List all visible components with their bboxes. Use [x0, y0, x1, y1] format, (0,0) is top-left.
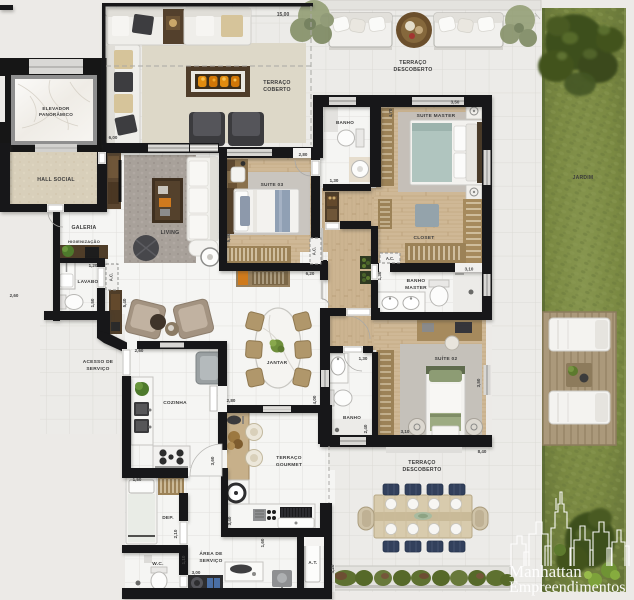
svg-text:SUITE 03: SUITE 03: [261, 182, 284, 188]
svg-text:LIVING: LIVING: [161, 230, 180, 236]
svg-text:BANHO: BANHO: [407, 278, 426, 284]
svg-text:3,50: 3,50: [451, 100, 460, 105]
svg-text:SERVIÇO: SERVIÇO: [199, 558, 222, 564]
svg-text:HIGIENIZAÇÃO: HIGIENIZAÇÃO: [68, 239, 100, 244]
svg-text:DESCOBERTO: DESCOBERTO: [393, 67, 432, 73]
svg-text:ACESSO DE: ACESSO DE: [83, 359, 114, 365]
svg-text:COBERTO: COBERTO: [263, 87, 291, 93]
svg-text:JANTAR: JANTAR: [267, 360, 288, 366]
svg-text:A.T.: A.T.: [308, 560, 317, 565]
svg-text:BANHO: BANHO: [343, 415, 361, 420]
svg-text:LAVABO: LAVABO: [77, 279, 98, 285]
svg-text:A.C.: A.C.: [386, 256, 394, 261]
svg-text:3,60: 3,60: [210, 456, 215, 465]
svg-text:1,60: 1,60: [260, 538, 265, 547]
svg-text:BANHO: BANHO: [336, 120, 354, 125]
svg-text:DESCOBERTO: DESCOBERTO: [402, 467, 441, 473]
svg-text:W.C.: W.C.: [152, 561, 163, 567]
svg-text:Empreendimentos: Empreendimentos: [509, 579, 625, 596]
svg-text:TERRAÇO: TERRAÇO: [263, 80, 290, 86]
svg-text:3,40: 3,40: [227, 516, 232, 525]
svg-text:CLOSET: CLOSET: [414, 235, 435, 241]
svg-text:HALL SOCIAL: HALL SOCIAL: [37, 177, 75, 183]
svg-text:ÁREA DE: ÁREA DE: [199, 550, 223, 557]
svg-text:2,60: 2,60: [135, 348, 144, 353]
svg-text:3,00: 3,00: [192, 570, 201, 575]
svg-text:GALERIA: GALERIA: [71, 225, 96, 231]
svg-text:1,30: 1,30: [330, 178, 339, 183]
svg-text:3,10: 3,10: [465, 267, 474, 272]
svg-text:A.C.: A.C.: [109, 273, 114, 281]
svg-text:SUITE MASTER: SUITE MASTER: [417, 113, 456, 119]
svg-text:6,20: 6,20: [306, 271, 315, 276]
svg-text:2,80: 2,80: [227, 398, 236, 403]
svg-text:5,30: 5,30: [226, 233, 231, 242]
svg-text:MASTER: MASTER: [405, 285, 427, 291]
svg-text:1,10: 1,10: [181, 555, 186, 564]
svg-text:2,60: 2,60: [10, 293, 19, 298]
svg-text:3,10: 3,10: [401, 429, 410, 434]
svg-text:A.C.: A.C.: [312, 247, 317, 255]
svg-text:TERRAÇO: TERRAÇO: [408, 460, 435, 466]
svg-text:1,30: 1,30: [377, 271, 382, 280]
svg-text:2,80: 2,80: [299, 152, 308, 157]
svg-text:2,40: 2,40: [363, 424, 368, 433]
svg-text:GOURMET: GOURMET: [276, 462, 302, 468]
svg-text:JARDIM: JARDIM: [573, 175, 594, 181]
svg-text:SERVIÇO: SERVIÇO: [86, 366, 109, 372]
svg-text:4,20: 4,20: [330, 564, 335, 573]
svg-text:ELEVADOR: ELEVADOR: [42, 106, 70, 111]
svg-text:1,50: 1,50: [133, 477, 142, 482]
svg-text:5,40: 5,40: [122, 298, 127, 307]
svg-text:8,40: 8,40: [478, 449, 487, 454]
svg-text:3,50: 3,50: [476, 378, 481, 387]
svg-text:15,00: 15,00: [277, 12, 290, 18]
svg-text:COZINHA: COZINHA: [163, 400, 187, 406]
svg-text:PANORÂMICO: PANORÂMICO: [39, 111, 73, 117]
svg-text:2,10: 2,10: [173, 529, 178, 538]
svg-text:6,00: 6,00: [109, 135, 118, 140]
svg-text:1,30: 1,30: [359, 356, 368, 361]
svg-text:DEP.: DEP.: [162, 515, 174, 521]
svg-text:4,00: 4,00: [312, 395, 317, 404]
svg-text:TERRAÇO: TERRAÇO: [276, 455, 301, 461]
svg-text:TERRAÇO: TERRAÇO: [399, 60, 426, 66]
svg-text:1,50: 1,50: [90, 298, 95, 307]
svg-text:1,20: 1,20: [89, 263, 98, 268]
svg-text:4,70: 4,70: [388, 108, 393, 117]
